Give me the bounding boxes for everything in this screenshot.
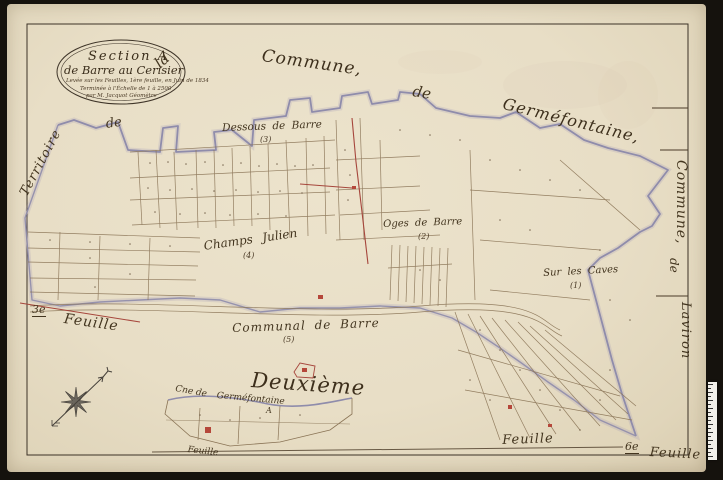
compass-rose-icon: [52, 367, 112, 426]
placename-communal-de-barre-num: (5): [283, 336, 294, 344]
sheet-6e-num: 6e: [625, 441, 639, 454]
margin-commune-right: Commune,: [674, 160, 688, 244]
enclave-a-mark: A: [266, 407, 272, 415]
sheet-3e-num: 3e: [32, 304, 46, 317]
placename-dessous-de-barre-num: (3): [260, 136, 271, 144]
cartouche-subtitle: Levée sur les Feuilles, 1ère feuille, en…: [66, 79, 209, 85]
cartouche-scale-note: Terminée à l'Échelle de 1 à 2500: [80, 87, 171, 93]
placename-champs-julien-num: (4): [243, 252, 254, 260]
margin-de-top: de: [411, 84, 432, 102]
margin-laviron: Laviron: [679, 302, 692, 359]
scan-ruler-strip: [708, 382, 717, 460]
placename-sur-les-caves-num: (1): [570, 282, 581, 290]
scanned-cadastral-map: Section A de Barre au Cerisier Levée sur…: [0, 0, 723, 480]
sheet-6e-feuille: Feuille: [649, 446, 701, 462]
sheet-bottom-feuille: Feuille: [502, 432, 554, 447]
placename-oges-de-barre-num: (2): [418, 233, 429, 241]
cartouche-surveyor: par M. Jacquot Géomètre: [86, 94, 157, 100]
margin-de-right: de: [668, 258, 680, 273]
margin-de-left: de: [105, 116, 123, 131]
